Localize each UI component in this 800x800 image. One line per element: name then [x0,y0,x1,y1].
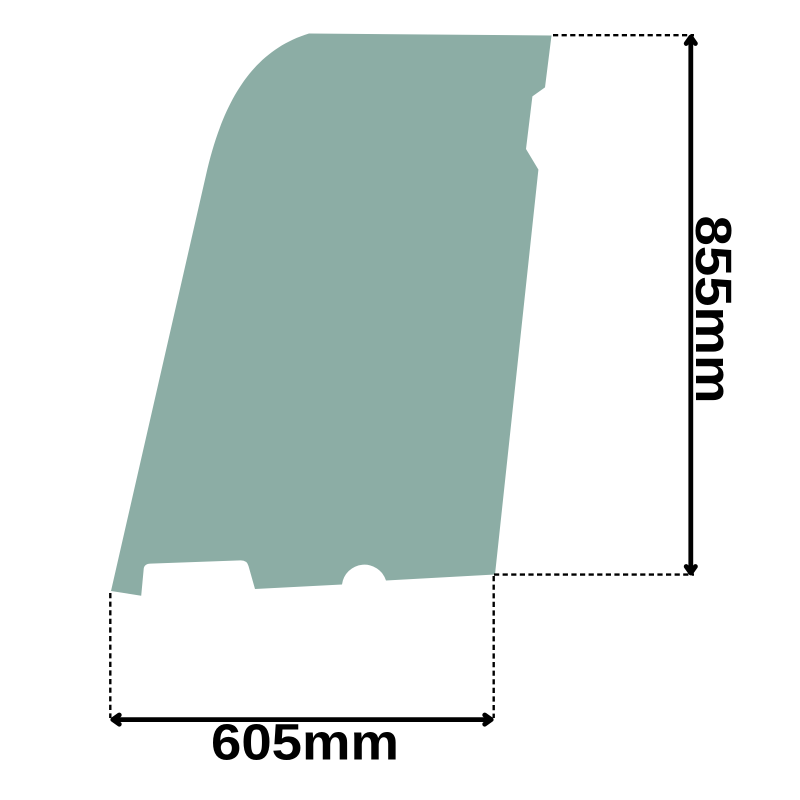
svg-text:855mm: 855mm [685,216,742,404]
svg-text:605mm: 605mm [211,714,399,771]
